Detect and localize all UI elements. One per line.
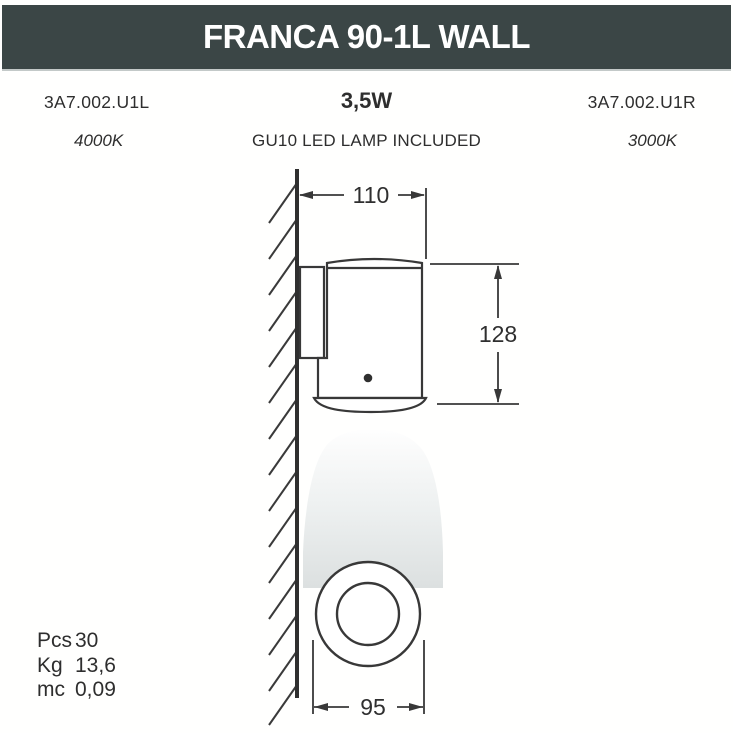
dimension-diameter-label: 95: [360, 694, 386, 720]
packaging-value: 30: [75, 629, 98, 654]
packaging-label: Pcs: [37, 629, 75, 654]
product-datasheet: FRANCA 90-1L WALL 3A7.002.U1L 3,5W 3A7.0…: [0, 0, 733, 733]
packaging-label: mc: [37, 678, 75, 703]
packaging-row: Pcs 30: [37, 629, 116, 654]
lamp-front-rim: [314, 398, 426, 412]
packaging-info: Pcs 30 Kg 13,6 mc 0,09: [37, 629, 116, 703]
packaging-row: Kg 13,6: [37, 654, 116, 679]
lamp-bottom-view: [316, 562, 420, 666]
wall-hatching: [269, 183, 297, 725]
lamp-side-view: [314, 259, 426, 412]
packaging-row: mc 0,09: [37, 678, 116, 703]
packaging-value: 0,09: [75, 678, 116, 703]
packaging-label: Kg: [37, 654, 75, 679]
dimension-height-label: 128: [479, 321, 517, 347]
mounting-bracket: [300, 267, 324, 358]
lamp-bottom-outer-circle: [316, 562, 420, 666]
technical-drawing: 110 128: [0, 0, 733, 733]
dimension-width-label: 110: [353, 182, 390, 208]
packaging-value: 13,6: [75, 654, 116, 679]
fixing-screw-dot: [364, 374, 373, 383]
